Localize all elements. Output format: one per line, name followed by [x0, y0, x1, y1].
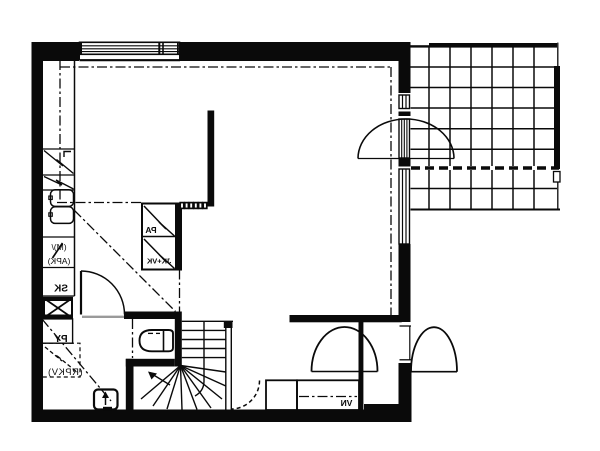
svg-text:PA: PA	[145, 225, 156, 235]
svg-text:(APK): (APK)	[47, 256, 70, 266]
svg-text:(M)/: (M)/	[51, 242, 67, 252]
svg-text:SK: SK	[53, 284, 68, 295]
svg-text:VN: VN	[341, 398, 353, 408]
svg-text:(RPKV): (RPKV)	[47, 367, 82, 377]
svg-text:PY: PY	[54, 334, 68, 345]
svg-text:JK+VK: JK+VK	[146, 257, 171, 266]
